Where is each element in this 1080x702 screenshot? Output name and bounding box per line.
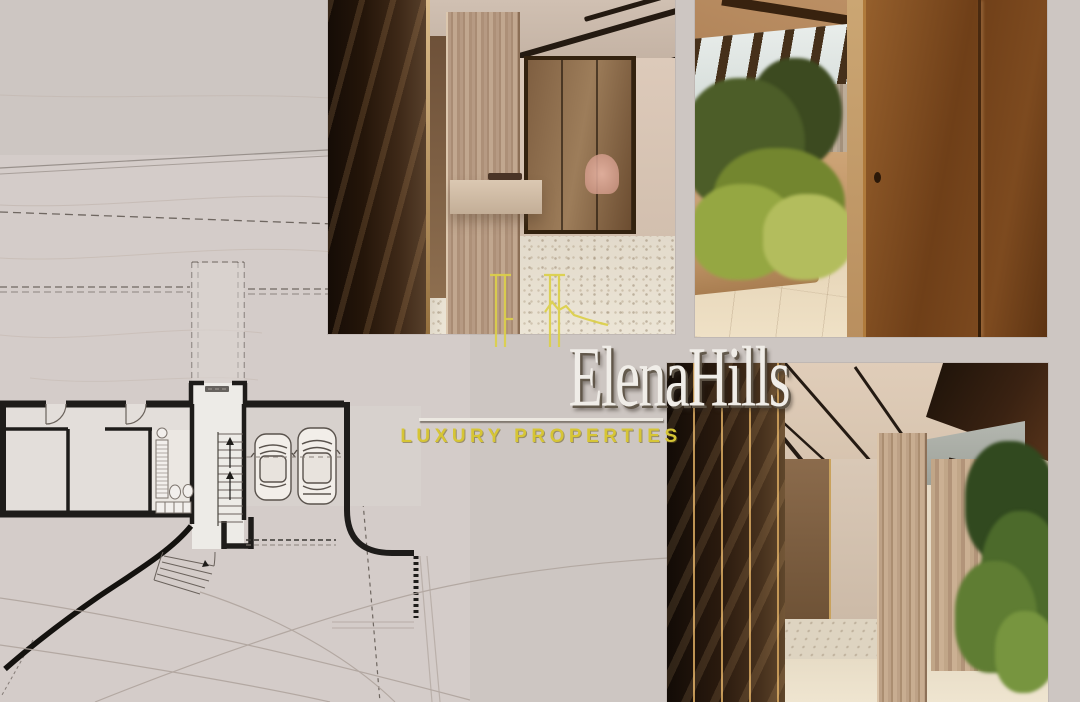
bronze-glass-panel xyxy=(785,459,831,621)
velvet-pouf xyxy=(520,198,578,260)
plant-foliage xyxy=(995,611,1048,693)
pink-armchair xyxy=(843,558,877,602)
brochure-page: ElenaHills LUXURY PROPERTIES xyxy=(0,0,1080,702)
copper-door-panels xyxy=(863,0,1047,337)
velvet-pouf xyxy=(833,615,873,661)
brand-tagline: LUXURY PROPERTIES xyxy=(375,426,707,448)
entrance-hall-photo xyxy=(695,0,1047,337)
brand-underline xyxy=(419,418,663,421)
elevator-label-mark xyxy=(205,386,229,392)
wall-edge xyxy=(847,0,863,337)
brand-logo: ElenaHills LUXURY PROPERTIES xyxy=(405,262,677,457)
travertine-column xyxy=(877,433,927,702)
pink-armchair xyxy=(628,152,672,204)
parked-car xyxy=(251,434,295,500)
parked-car xyxy=(294,428,340,504)
